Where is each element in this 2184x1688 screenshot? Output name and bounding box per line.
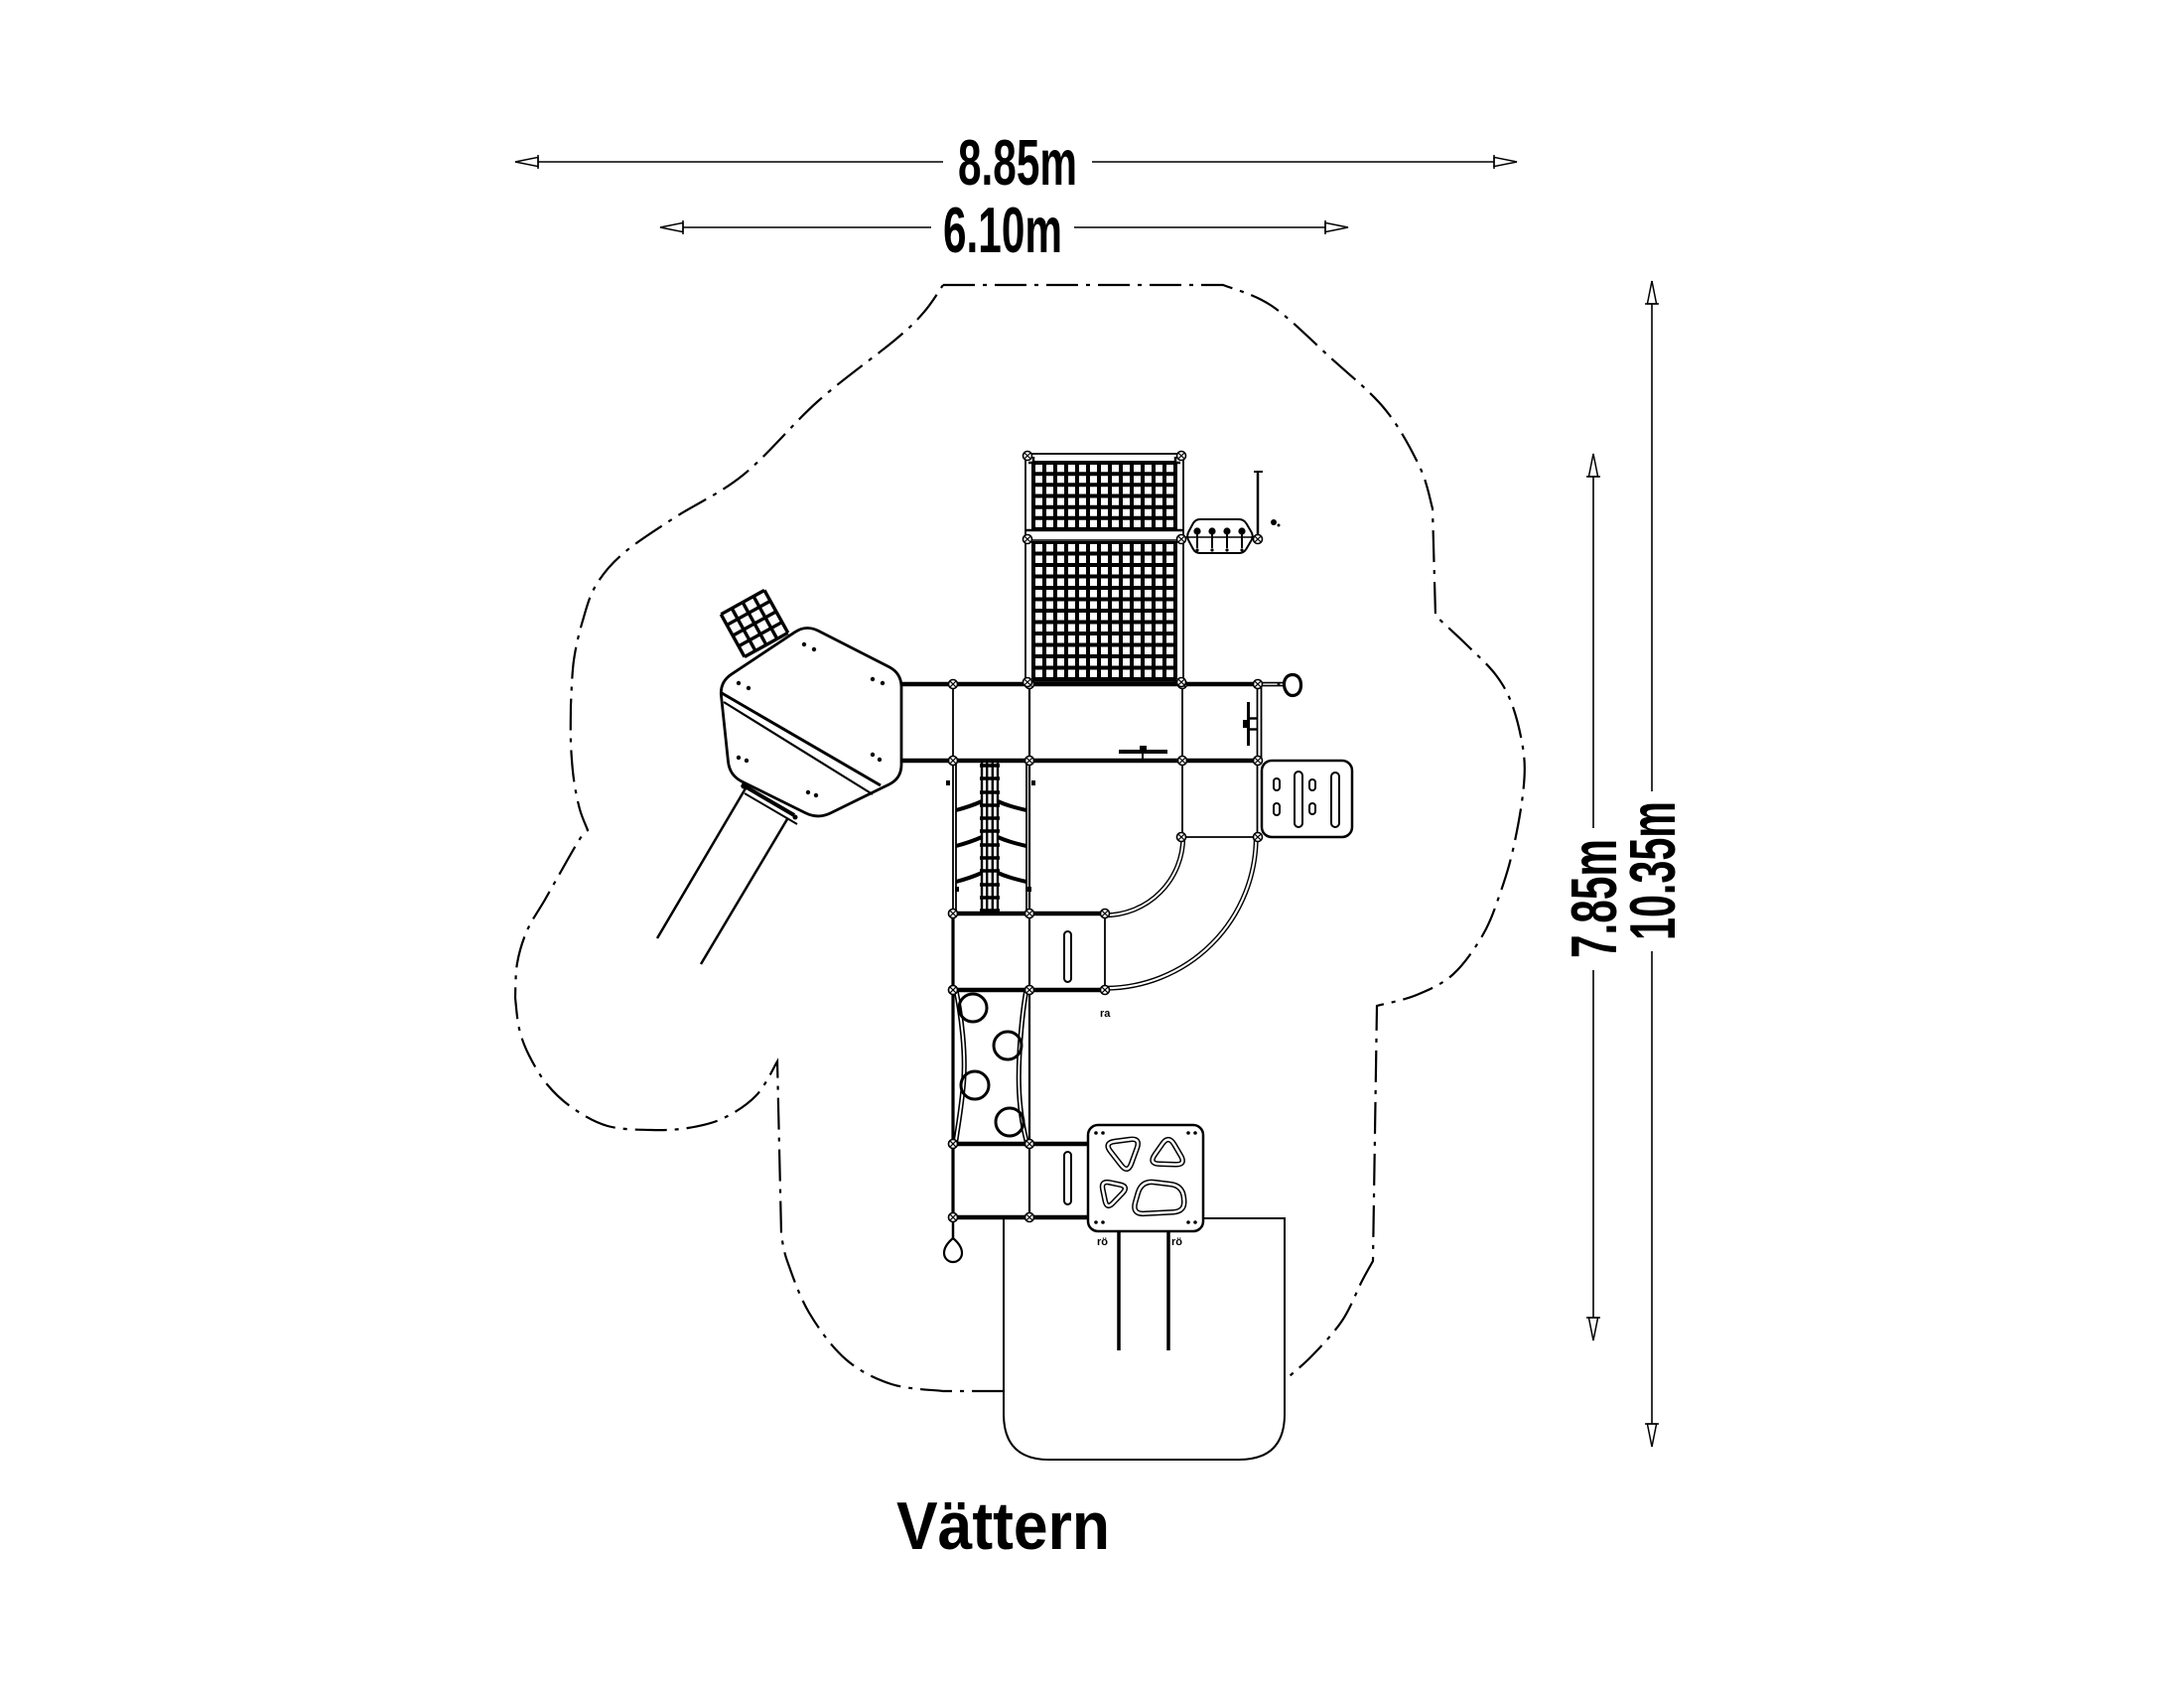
- svg-text:rö: rö: [1097, 1236, 1108, 1248]
- svg-text:6.10m: 6.10m: [943, 194, 1062, 266]
- svg-text:8.85m: 8.85m: [958, 126, 1077, 199]
- svg-text:Vättern: Vättern: [896, 1488, 1110, 1564]
- svg-text:ra: ra: [1100, 1008, 1111, 1020]
- svg-text:rö: rö: [1171, 1236, 1182, 1248]
- svg-text:10.35m: 10.35m: [1616, 801, 1689, 940]
